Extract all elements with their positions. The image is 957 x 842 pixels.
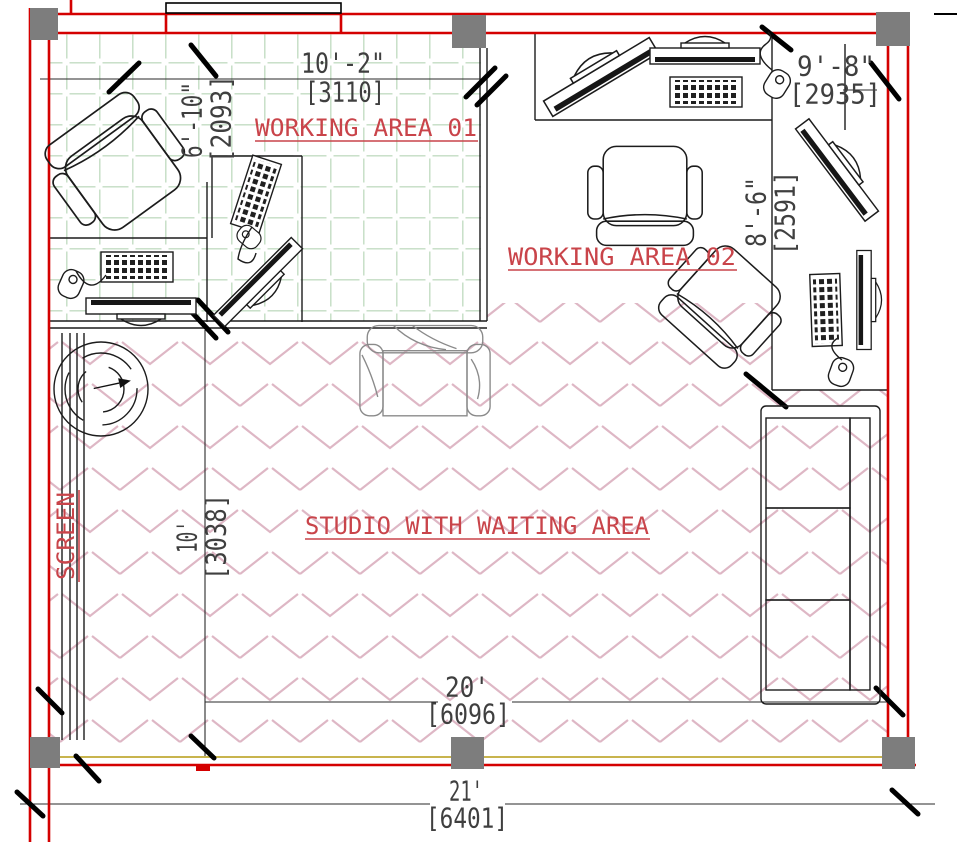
label-working-area-01: WORKING AREA 01 xyxy=(255,114,477,142)
dim-studio-width-mm: [6096] xyxy=(426,698,510,731)
dim-studio-depth-mm: [3038] xyxy=(200,494,233,580)
dim-overall-width-mm: [6401] xyxy=(426,802,508,835)
keyboard-wa02-right xyxy=(810,273,842,346)
keyboard-wa01-desk xyxy=(101,252,173,282)
column-top-left xyxy=(30,8,58,40)
label-studio-waiting-area: STUDIO WITH WAITING AREA xyxy=(305,512,650,540)
column-bottom-left xyxy=(30,737,60,768)
floor-plan-canvas: WORKING AREA 01 WORKING AREA 02 STUDIO W… xyxy=(0,0,957,842)
dim-wa02-width-mm: [2935] xyxy=(789,78,881,111)
label-screen: SCREEN xyxy=(52,492,80,580)
lintel-beam xyxy=(166,3,341,13)
floor-plan-page: WORKING AREA 01 WORKING AREA 02 STUDIO W… xyxy=(0,0,957,842)
column-top-right xyxy=(876,12,910,46)
dim-wa01-width-mm: [3110] xyxy=(305,76,385,109)
column-top-center xyxy=(452,15,486,48)
label-working-area-02: WORKING AREA 02 xyxy=(508,243,736,271)
column-bottom-center xyxy=(451,737,484,769)
dim-wa01-depth-mm: [2093] xyxy=(205,75,238,163)
dim-wa02-depth-mm: [2591] xyxy=(769,171,802,255)
keyboard-wa02-top xyxy=(670,77,742,107)
column-bottom-right xyxy=(882,737,915,769)
